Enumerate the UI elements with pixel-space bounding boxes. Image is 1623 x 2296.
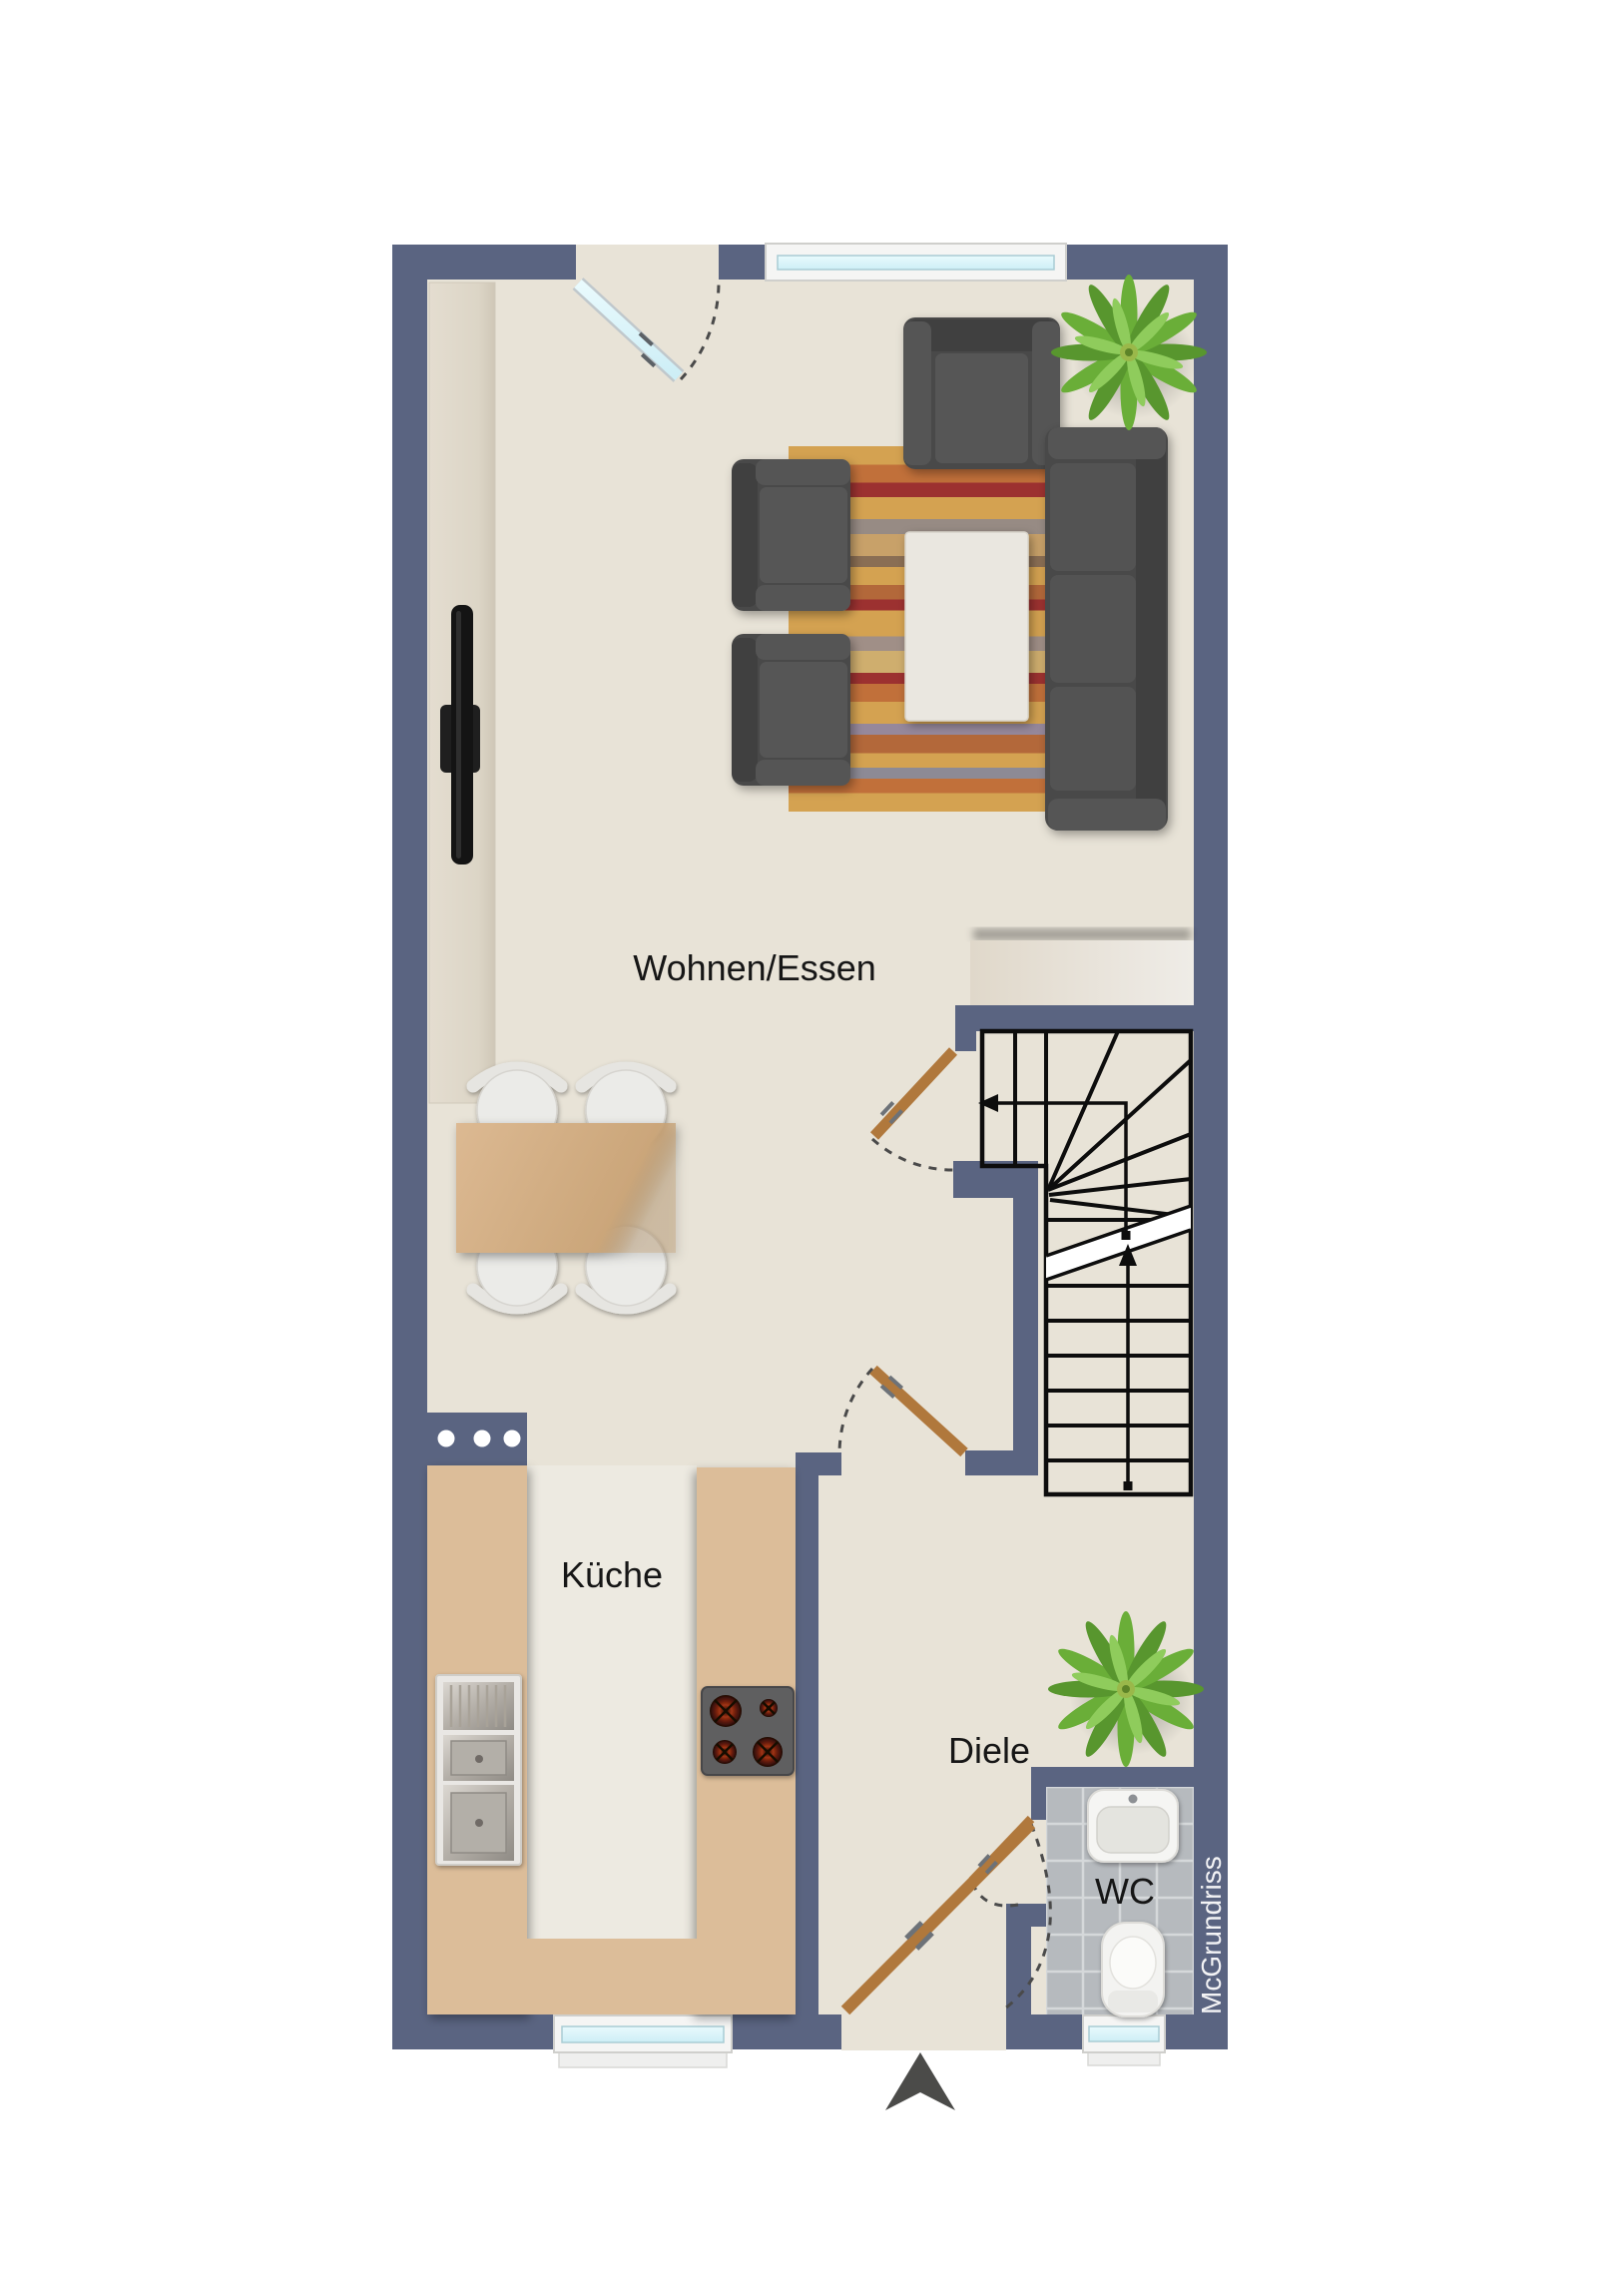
floor-entrance-opening (841, 2014, 1006, 2050)
wall-right (1194, 245, 1228, 2049)
wall-wc-left-lower (1006, 1904, 1031, 2014)
wc-toilet (1102, 1923, 1164, 2016)
wall-kitchen-hall-cap (796, 1452, 841, 1475)
window-top-glass (778, 256, 1054, 270)
dining-table (456, 1123, 676, 1253)
sofa (1045, 427, 1168, 831)
stair-sideboard (970, 928, 1194, 1005)
stair-sideboard-top (970, 940, 1194, 1005)
watermark-text: McGrundriss (1196, 1856, 1227, 2014)
wall-kitchen-hall (796, 1452, 818, 2014)
floorplan-page: Wohnen/Essen Küche Diele WC McGrundriss (0, 0, 1623, 2296)
kitchen-stub-dots (438, 1431, 521, 1447)
kitchen-sink-unit (436, 1675, 521, 1865)
label-hallway: Diele (948, 1730, 1030, 1771)
coffee-table (905, 532, 1028, 721)
washbasin-tap-icon (1129, 1795, 1138, 1804)
wall-wc-left-upper (1031, 1767, 1046, 1820)
wall-stair-left (1013, 1198, 1038, 1475)
floor-terrace-door-opening (576, 245, 719, 281)
toilet-lid (1108, 1991, 1158, 2012)
stub-dot-3 (504, 1431, 521, 1447)
window-kitchen-glass (562, 2026, 724, 2042)
label-living-dining: Wohnen/Essen (633, 947, 876, 988)
window-top (766, 244, 1066, 281)
armchair-top (903, 317, 1060, 469)
counter-bottom (427, 1939, 796, 2014)
armchair-left-1 (732, 459, 850, 611)
stub-dot-1 (438, 1431, 455, 1447)
window-kitchen-sill (559, 2052, 727, 2067)
stair-sideboard-shadow (973, 928, 1191, 940)
kitchen-walkway-floor (527, 1465, 697, 1939)
stub-dot-2 (474, 1431, 491, 1447)
sink-drain-small (475, 1755, 483, 1763)
sink-drain-large (475, 1819, 483, 1827)
armchair-left-2 (732, 634, 850, 786)
sink-drainboard-ridges (451, 1685, 505, 1727)
wc-washbasin (1088, 1790, 1178, 1862)
wall-stair-bottom-cap (965, 1450, 1038, 1475)
label-wc: WC (1095, 1871, 1155, 1912)
window-wc (1083, 2015, 1165, 2065)
north-arrow-icon (885, 2052, 955, 2110)
wall-left (392, 245, 427, 2049)
floorplan-canvas: Wohnen/Essen Küche Diele WC McGrundriss (0, 0, 1623, 2296)
wall-stair-door-jamb (955, 1005, 976, 1051)
window-kitchen (554, 2015, 732, 2067)
wall-stair-top (955, 1005, 1194, 1031)
kitchen-stove (702, 1687, 794, 1775)
window-wc-sill (1088, 2052, 1160, 2065)
label-kitchen: Küche (561, 1554, 663, 1595)
wall-wc-top (1031, 1767, 1194, 1787)
window-wc-glass (1089, 2026, 1159, 2041)
